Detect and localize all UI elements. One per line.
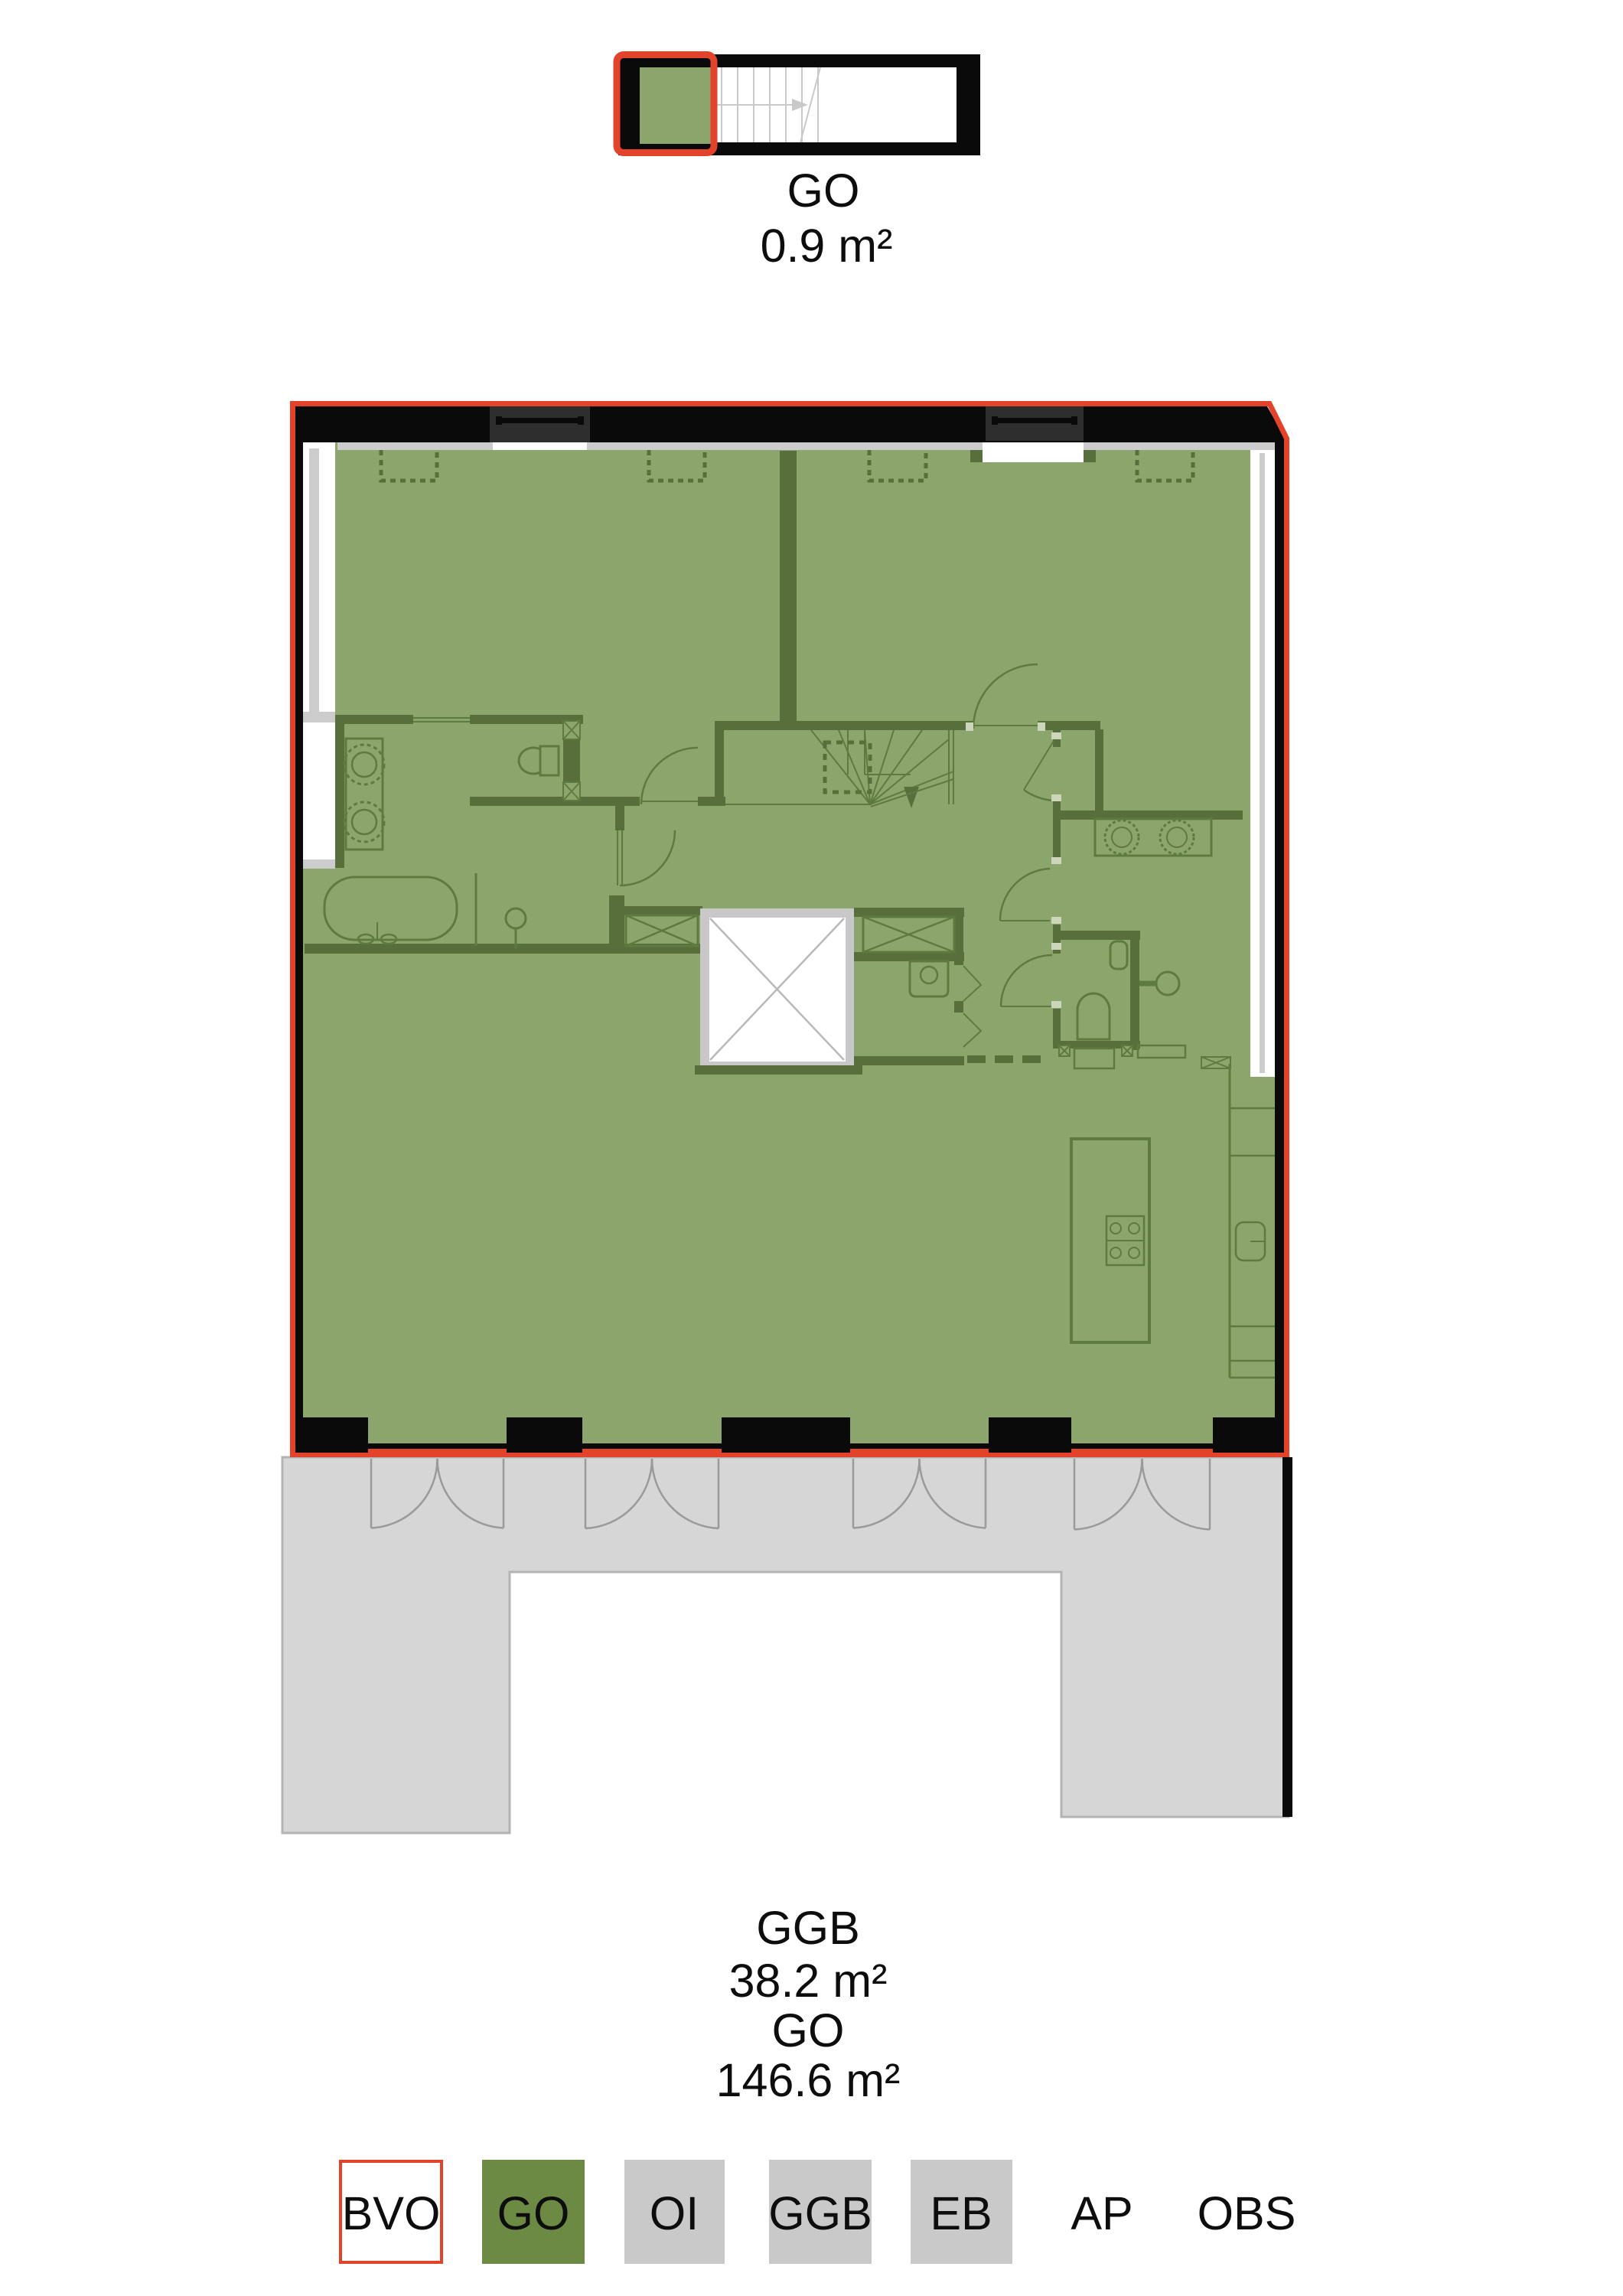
svg-text:GO: GO: [772, 2004, 845, 2056]
svg-text:AP: AP: [1071, 2187, 1133, 2239]
svg-text:0.9 m²: 0.9 m²: [761, 220, 893, 272]
svg-text:GGB: GGB: [768, 2187, 872, 2239]
svg-text:BVO: BVO: [342, 2187, 441, 2239]
svg-text:38.2 m²: 38.2 m²: [729, 1955, 888, 2007]
svg-text:146.6 m²: 146.6 m²: [716, 2054, 901, 2106]
svg-text:EB: EB: [930, 2187, 992, 2239]
svg-text:OI: OI: [650, 2187, 699, 2239]
svg-text:OBS: OBS: [1198, 2187, 1296, 2239]
svg-text:GGB: GGB: [756, 1902, 860, 1954]
svg-text:GO: GO: [787, 165, 860, 217]
svg-text:GO: GO: [497, 2187, 570, 2239]
